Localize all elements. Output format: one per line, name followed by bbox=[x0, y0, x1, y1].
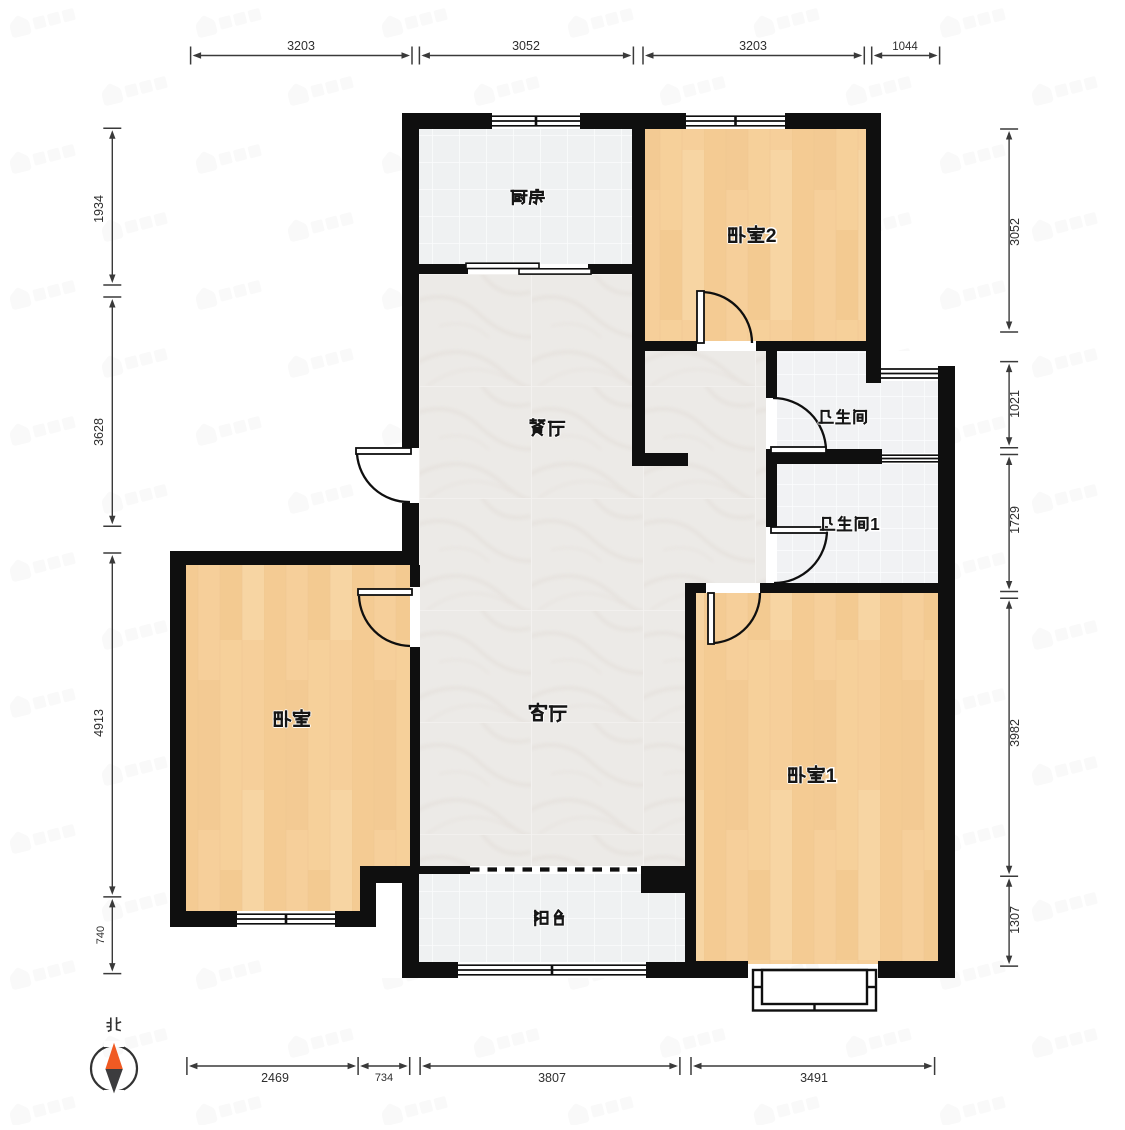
svg-text:1729: 1729 bbox=[1008, 506, 1022, 534]
svg-text:734: 734 bbox=[375, 1072, 393, 1084]
svg-text:3203: 3203 bbox=[287, 39, 315, 53]
svg-text:2: 2 bbox=[766, 225, 777, 247]
svg-text:3807: 3807 bbox=[538, 1071, 566, 1085]
svg-text:1: 1 bbox=[870, 514, 880, 534]
svg-text:3052: 3052 bbox=[512, 39, 540, 53]
svg-text:740: 740 bbox=[95, 926, 107, 944]
svg-text:1934: 1934 bbox=[92, 195, 106, 223]
svg-text:1307: 1307 bbox=[1008, 906, 1022, 934]
svg-text:3491: 3491 bbox=[800, 1071, 828, 1085]
svg-text:4913: 4913 bbox=[92, 709, 106, 737]
svg-text:3982: 3982 bbox=[1008, 719, 1022, 747]
svg-text:3628: 3628 bbox=[92, 418, 106, 446]
svg-text:3203: 3203 bbox=[739, 39, 767, 53]
svg-text:3052: 3052 bbox=[1008, 218, 1022, 246]
svg-text:2469: 2469 bbox=[261, 1071, 289, 1085]
svg-text:1: 1 bbox=[826, 765, 837, 787]
svg-text:1044: 1044 bbox=[892, 41, 918, 53]
svg-text:1021: 1021 bbox=[1008, 390, 1022, 418]
